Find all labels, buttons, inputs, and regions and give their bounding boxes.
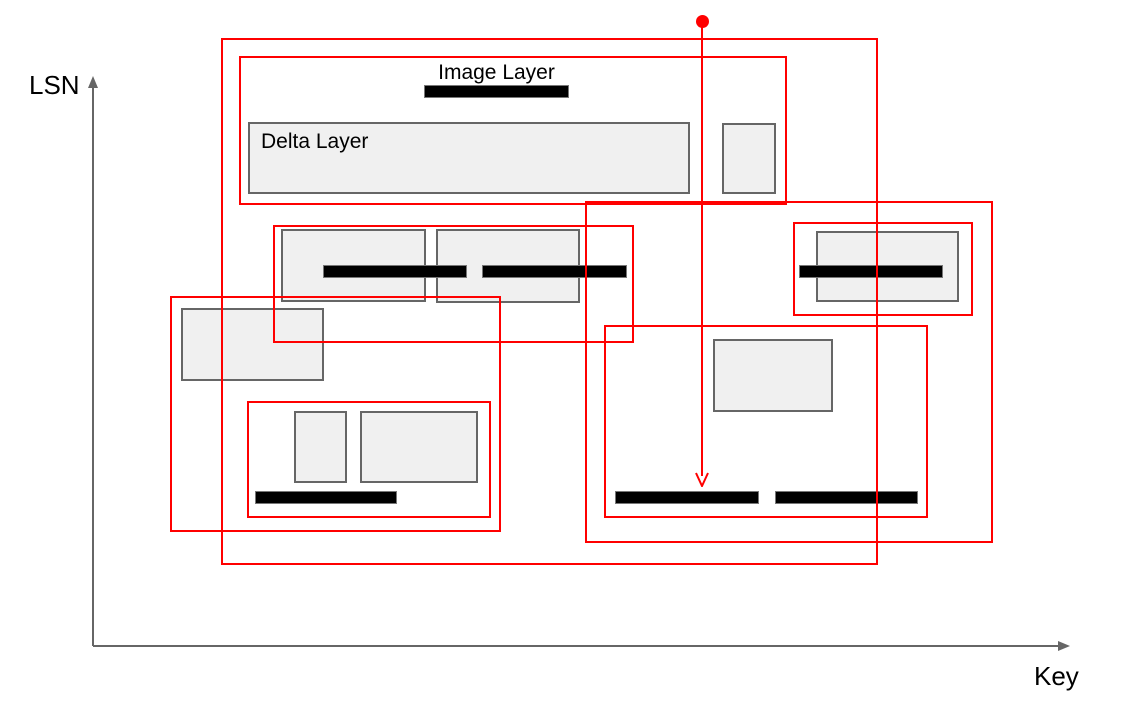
key-axis-label: Key xyxy=(1034,662,1079,691)
red-rect-right-small-group xyxy=(793,222,973,316)
key-axis-arrow-icon xyxy=(1058,641,1070,651)
image-layer-label: Image Layer xyxy=(404,61,589,84)
query-marker-arrowhead-icon xyxy=(694,471,710,487)
lsn-axis-line xyxy=(92,86,94,646)
query-marker-line xyxy=(701,21,703,476)
lsn-axis-label: LSN xyxy=(29,71,80,100)
key-axis-line xyxy=(93,645,1059,647)
layer-map-diagram: LSN Key Image Layer Delta Layer xyxy=(0,0,1131,719)
red-rect-bottom-left-inner-group xyxy=(247,401,491,518)
delta-layer-label: Delta Layer xyxy=(261,130,368,153)
lsn-axis-arrow-icon xyxy=(88,76,98,88)
red-rect-bottom-right-group xyxy=(604,325,928,518)
